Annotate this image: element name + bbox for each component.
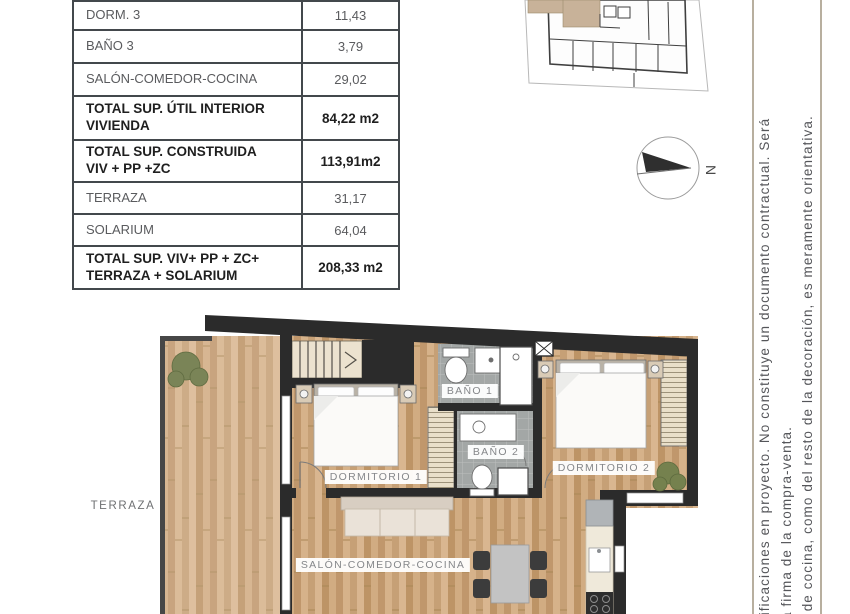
table-row-total: TOTAL SUP. ÚTIL INTERIOR VIVIENDA 84,22 … <box>74 97 398 141</box>
row-value: 29,02 <box>301 64 398 95</box>
north-label: N <box>703 165 719 175</box>
shaft-icon <box>535 341 553 356</box>
label-terraza: TERRAZA <box>86 499 161 513</box>
kitchen-counter <box>586 500 613 614</box>
row-label: SOLARIUM <box>74 215 301 245</box>
area-table: DORM. 3 11,43 BAÑO 3 3,79 SALÓN-COMEDOR-… <box>72 0 400 290</box>
disclaimer-line-2: a firma de la compra-venta. <box>779 426 794 614</box>
row-label: TOTAL SUP. VIV+ PP + ZC+ TERRAZA + SOLAR… <box>74 247 301 288</box>
row-value: 84,22 m2 <box>301 97 398 139</box>
row-label: DORM. 3 <box>74 2 301 29</box>
table-row: SALÓN-COMEDOR-COCINA 29,02 <box>74 64 398 97</box>
row-value: 31,17 <box>301 183 398 213</box>
wardrobe-dorm2 <box>661 360 687 446</box>
titleblock-rule-right <box>820 0 822 614</box>
disclaimer-line-3: s de cocina, como del resto de la decora… <box>800 115 815 614</box>
label-dormitorio1: DORMITORIO 1 <box>325 470 427 484</box>
row-label: TOTAL SUP. ÚTIL INTERIOR VIVIENDA <box>74 97 301 139</box>
table-row-total: TOTAL SUP. VIV+ PP + ZC+ TERRAZA + SOLAR… <box>74 247 398 288</box>
stairs <box>292 341 362 378</box>
row-label: BAÑO 3 <box>74 31 301 62</box>
row-value: 64,04 <box>301 215 398 245</box>
row-value: 11,43 <box>301 2 398 29</box>
outside-area <box>626 508 715 614</box>
table-row: TERRAZA 31,17 <box>74 183 398 215</box>
disclaimer-line-1: dificaciones en proyecto. No constituye … <box>757 118 772 614</box>
sofa <box>341 497 453 536</box>
bed-dorm2 <box>538 360 663 448</box>
row-label: SALÓN-COMEDOR-COCINA <box>74 64 301 95</box>
table-row: DORM. 3 11,43 <box>74 2 398 31</box>
row-label: TOTAL SUP. CONSTRUIDA VIV + PP +ZC <box>74 141 301 181</box>
site-key-plan <box>488 0 715 122</box>
row-value: 3,79 <box>301 31 398 62</box>
row-label: TERRAZA <box>74 183 301 213</box>
label-bano2: BAÑO 2 <box>468 445 524 459</box>
bed-dorm1 <box>296 384 416 466</box>
plan-sheet: DORM. 3 11,43 BAÑO 3 3,79 SALÓN-COMEDOR-… <box>0 0 850 614</box>
label-dormitorio2: DORMITORIO 2 <box>553 461 655 475</box>
row-value: 113,91m2 <box>301 141 398 181</box>
table-row-total: TOTAL SUP. CONSTRUIDA VIV + PP +ZC 113,9… <box>74 141 398 183</box>
label-bano1: BAÑO 1 <box>442 384 498 398</box>
compass: N <box>628 128 728 218</box>
table-row: BAÑO 3 3,79 <box>74 31 398 64</box>
titleblock-rule-left <box>752 0 754 614</box>
table-row: SOLARIUM 64,04 <box>74 215 398 247</box>
wardrobe-dorm1 <box>428 407 454 492</box>
label-salon: SALÓN-COMEDOR-COCINA <box>296 558 470 572</box>
row-value: 208,33 m2 <box>301 247 398 288</box>
